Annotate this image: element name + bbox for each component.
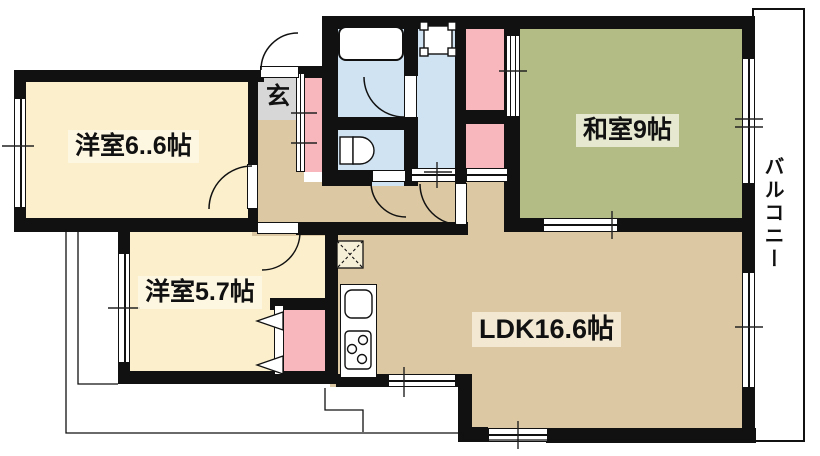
door-leaf-western-6-6 [247, 164, 258, 209]
window [488, 428, 548, 442]
wall [546, 428, 756, 443]
entrance-storage [304, 73, 324, 172]
room-label-balcony: バルコニー [760, 156, 783, 271]
room-label-western-6-6: 洋室6..6帖 [68, 130, 199, 163]
room-ldk-floor [330, 228, 755, 387]
wall [458, 427, 488, 442]
sliding-door-washroom [411, 168, 456, 182]
door-leaf-toilet [372, 170, 406, 182]
closet-sliding-door [466, 168, 508, 182]
wall [14, 70, 264, 82]
closet-sliding-door [506, 35, 520, 117]
window [118, 253, 130, 363]
wall [328, 117, 418, 130]
wall [324, 16, 755, 29]
window [742, 272, 755, 388]
wall [322, 170, 372, 186]
closet-lower [464, 124, 508, 172]
window [388, 374, 456, 387]
window [742, 58, 755, 184]
wall [296, 222, 468, 235]
room-label-western-5-7: 洋室5.7帖 [138, 276, 262, 309]
room-label-japanese-9: 和室9帖 [576, 114, 679, 147]
wall [404, 16, 418, 76]
door-leaf-western-5-7 [257, 222, 299, 234]
wall [322, 16, 338, 186]
wall [118, 371, 338, 384]
wall [455, 16, 466, 186]
wall [14, 218, 258, 232]
wall [504, 218, 755, 232]
room-label-entrance: 玄 [258, 74, 298, 120]
room-label-ldk: LDK16.6帖 [472, 312, 621, 347]
closet-western-5-7 [278, 305, 328, 375]
sliding-door-japanese-room [543, 218, 618, 232]
floor-plan: 洋室6..6帖 和室9帖 洋室5.7帖 LDK16.6帖 玄 バルコニー [0, 0, 820, 456]
wall [460, 110, 508, 124]
window [14, 98, 26, 208]
door-leaf-washroom [455, 183, 467, 225]
closet-door-panel [274, 305, 284, 375]
closet-upper [464, 20, 508, 110]
kitchen-counter [340, 284, 377, 378]
door-leaf-bathroom [404, 75, 417, 118]
